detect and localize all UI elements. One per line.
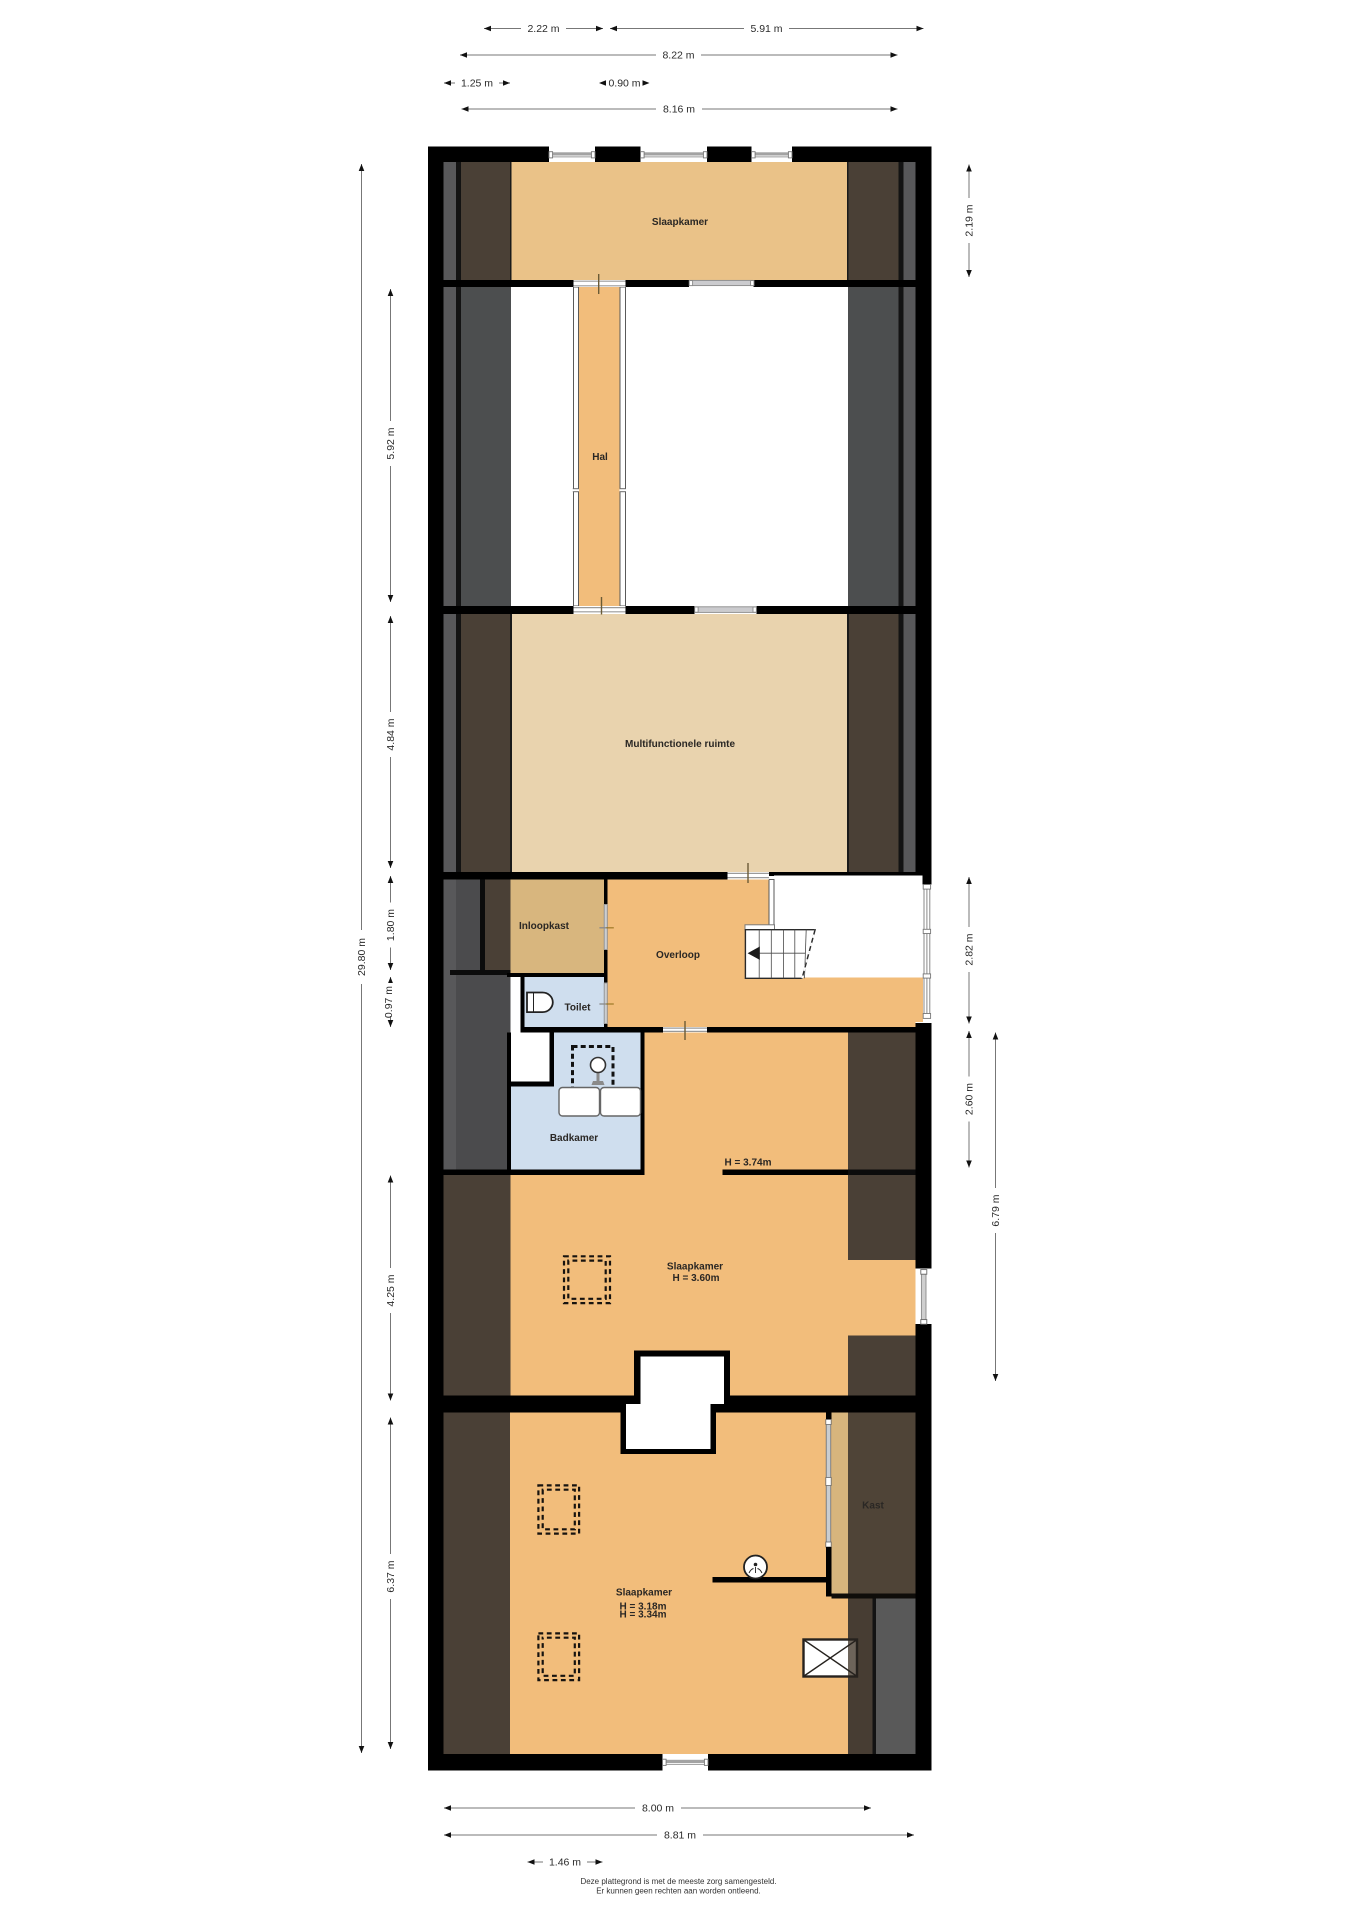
- svg-text:Slaapkamer: Slaapkamer: [616, 1588, 672, 1599]
- svg-text:H = 3.60m: H = 3.60m: [673, 1273, 720, 1284]
- svg-text:4.84 m: 4.84 m: [385, 718, 397, 750]
- svg-text:Kast: Kast: [862, 1501, 884, 1512]
- svg-text:Er kunnen geen rechten aan wor: Er kunnen geen rechten aan worden ontlee…: [596, 1887, 761, 1896]
- svg-text:5.91 m: 5.91 m: [750, 23, 782, 35]
- svg-text:6.37 m: 6.37 m: [385, 1560, 397, 1592]
- svg-text:Slaapkamer: Slaapkamer: [667, 1262, 723, 1273]
- svg-text:8.16 m: 8.16 m: [663, 104, 695, 116]
- svg-text:0.90 m: 0.90 m: [608, 78, 640, 90]
- svg-text:1.80 m: 1.80 m: [385, 909, 397, 941]
- svg-text:0.97 m: 0.97 m: [383, 986, 395, 1018]
- svg-text:1.25 m: 1.25 m: [461, 78, 493, 90]
- svg-text:8.22 m: 8.22 m: [662, 50, 694, 62]
- svg-text:Toilet: Toilet: [565, 1003, 592, 1014]
- svg-text:Badkamer: Badkamer: [550, 1133, 598, 1144]
- svg-text:1.46 m: 1.46 m: [549, 1857, 581, 1869]
- svg-text:Inloopkast: Inloopkast: [519, 921, 570, 932]
- svg-text:Deze plattegrond is met de mee: Deze plattegrond is met de meeste zorg s…: [580, 1877, 776, 1886]
- svg-text:8.81 m: 8.81 m: [664, 1830, 696, 1842]
- svg-text:2.19 m: 2.19 m: [964, 204, 976, 236]
- svg-text:4.25 m: 4.25 m: [385, 1274, 397, 1306]
- svg-text:H = 3.34m: H = 3.34m: [620, 1610, 667, 1621]
- svg-text:Multifunctionele ruimte: Multifunctionele ruimte: [625, 739, 735, 750]
- svg-text:6.79 m: 6.79 m: [990, 1194, 1002, 1226]
- svg-text:H = 3.74m: H = 3.74m: [725, 1158, 772, 1169]
- svg-text:2.22 m: 2.22 m: [527, 23, 559, 35]
- svg-text:5.92 m: 5.92 m: [385, 427, 397, 459]
- svg-text:8.00 m: 8.00 m: [642, 1803, 674, 1815]
- svg-text:Hal: Hal: [592, 452, 608, 463]
- svg-text:2.82 m: 2.82 m: [964, 933, 976, 965]
- svg-text:29.80 m: 29.80 m: [356, 938, 368, 976]
- svg-text:Slaapkamer: Slaapkamer: [652, 217, 708, 228]
- svg-text:2.60 m: 2.60 m: [964, 1083, 976, 1115]
- svg-text:Overloop: Overloop: [656, 950, 700, 961]
